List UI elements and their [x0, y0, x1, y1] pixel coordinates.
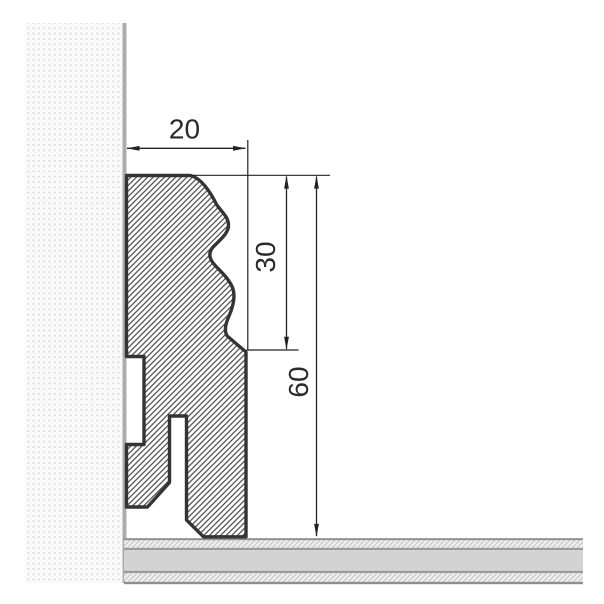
arrowhead-up-icon	[284, 176, 289, 189]
wall	[25, 23, 123, 583]
dimension-label-molding-height: 30	[250, 241, 281, 272]
dimension-label-total-height: 60	[283, 366, 314, 397]
arrowhead-left-icon	[127, 146, 140, 151]
floor-underlay-bottom	[124, 573, 583, 582]
arrowhead-up-icon	[314, 176, 319, 189]
arrowhead-right-icon	[233, 146, 246, 151]
technical-drawing-page: 20 30 60	[0, 0, 604, 604]
skirting-profile	[127, 176, 247, 537]
dimension-label-width: 20	[169, 114, 200, 145]
arrowhead-down-icon	[314, 524, 319, 537]
floor-core	[124, 550, 583, 571]
skirting-profile-drawing: 20 30 60	[0, 0, 604, 604]
floor-underlay-top	[124, 540, 583, 548]
floor-separator-top	[124, 548, 583, 550]
floor-top-border	[124, 538, 583, 540]
floor	[124, 538, 583, 584]
arrowhead-down-icon	[284, 337, 289, 350]
floor-separator-bottom	[124, 571, 583, 573]
floor-bottom-border	[124, 582, 583, 584]
dimension-total-height: 60	[283, 176, 319, 537]
